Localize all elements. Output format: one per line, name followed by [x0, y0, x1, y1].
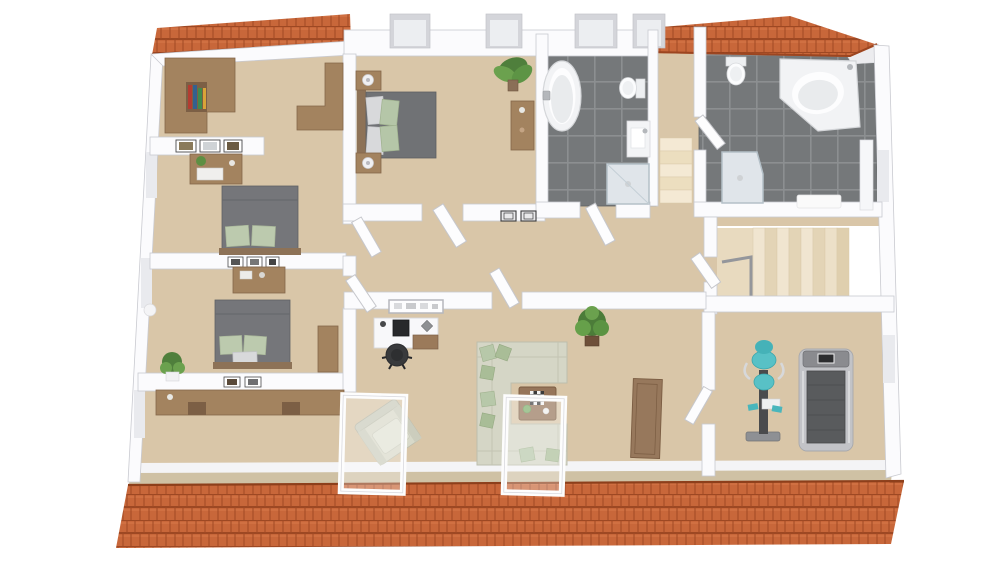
picture-art — [179, 142, 193, 150]
window-left — [134, 390, 145, 438]
stair-step — [813, 228, 825, 298]
corridor-step — [660, 177, 692, 190]
book — [198, 88, 202, 109]
washbasin-faucet — [643, 129, 648, 134]
stair-step — [789, 228, 801, 298]
window-top-glass — [490, 20, 518, 46]
corridor-step — [660, 138, 692, 151]
floor-plan-canvas — [0, 0, 1000, 562]
desk-mug — [380, 321, 386, 327]
bed-pillow — [380, 99, 400, 126]
treadmill-belt — [807, 371, 845, 443]
wall-bathroom2-south — [694, 202, 882, 217]
wall-fitness-west — [702, 312, 715, 390]
wall-vent — [521, 211, 536, 221]
picture-art — [248, 379, 258, 385]
sideboard-deco — [167, 394, 173, 400]
window-right — [883, 335, 895, 383]
bed-headboard — [219, 248, 301, 255]
bathtub-faucet — [847, 64, 853, 70]
roof-window-glass — [341, 395, 405, 493]
roof-top-right — [650, 16, 878, 57]
wall-master-south — [343, 204, 422, 221]
bed-pillow — [225, 225, 249, 247]
sofa-cushion — [480, 365, 495, 380]
dresser-deco — [229, 160, 235, 166]
corridor-step — [660, 190, 692, 203]
corridor-step — [660, 151, 692, 164]
wall-living-north — [522, 292, 706, 309]
sofa-cushion — [480, 413, 495, 428]
wall-corridor-east — [694, 150, 706, 206]
wall-bathrooms-south — [536, 202, 580, 218]
monitor — [393, 320, 409, 336]
bed-headboard — [213, 362, 292, 369]
dresser-drawer — [197, 168, 223, 180]
potted-plant-leaves — [585, 306, 599, 320]
bath-mat — [797, 195, 841, 208]
nightstand-lamp-top — [366, 161, 370, 165]
wall-corridor-east — [694, 27, 706, 117]
radiator — [860, 140, 873, 210]
pin-board-paper — [420, 303, 428, 309]
picture-art — [203, 142, 217, 150]
wall-left-column-east — [343, 54, 356, 224]
pin-board-paper — [406, 303, 416, 309]
wall-stairs-south — [704, 296, 894, 312]
potted-plant-leaves — [575, 320, 591, 336]
wall-hall-east — [704, 217, 717, 257]
bathtub-basin — [551, 75, 573, 123]
tall-cabinet — [631, 379, 663, 459]
shower-drain — [737, 175, 743, 181]
exercise-machine-pad — [754, 374, 774, 390]
dresser-plant — [196, 156, 206, 166]
window-left — [146, 152, 157, 198]
sofa-cushion — [480, 391, 496, 407]
window-top-glass — [394, 20, 426, 46]
wall-left-column-east — [343, 308, 356, 392]
stair-step — [765, 228, 777, 298]
picture-art — [231, 259, 240, 265]
book — [203, 88, 206, 109]
dresser-deco — [259, 272, 265, 278]
potted-plant-leaves — [593, 320, 609, 336]
toilet-seat — [623, 81, 634, 95]
pin-board-paper — [394, 303, 402, 309]
sphere-lamp — [144, 304, 156, 316]
floor-plant-pot — [166, 372, 179, 381]
wall-fitness-west — [702, 424, 715, 476]
roof-window-glass — [504, 397, 564, 493]
dresser-deco — [520, 128, 525, 133]
bathtub-faucet — [543, 91, 550, 100]
stair-step — [825, 228, 837, 298]
exercise-machine-headrest — [755, 340, 773, 354]
corridor-step — [660, 164, 692, 177]
picture-art — [269, 259, 276, 265]
wall-vent — [501, 211, 516, 221]
sideboard — [156, 390, 344, 415]
dresser-deco — [240, 271, 252, 279]
bed-pillow — [251, 225, 275, 246]
window-right — [877, 150, 889, 202]
desk-return — [413, 335, 438, 349]
bed-pillow — [220, 335, 243, 354]
wall-left-column-east — [343, 256, 356, 276]
floor-plan — [0, 0, 1000, 562]
picture-art — [250, 259, 259, 265]
book — [193, 85, 197, 109]
bed-pillow — [380, 125, 399, 151]
picture-art — [227, 142, 239, 150]
palm-plant-pot — [508, 80, 518, 91]
sideboard-panel — [188, 402, 206, 415]
picture-art — [227, 379, 237, 385]
stair-step — [753, 228, 765, 298]
dresser-deco — [519, 107, 525, 113]
window-top-glass — [579, 20, 613, 46]
office-chair-back — [391, 349, 403, 361]
wall-bathroom1-west — [536, 34, 548, 206]
sideboard-panel — [282, 402, 300, 415]
potted-plant-pot — [585, 336, 599, 346]
stair-step — [837, 228, 849, 298]
pin-board-paper — [432, 304, 438, 309]
stair-step — [801, 228, 813, 298]
bench — [318, 326, 338, 372]
toilet-seat — [730, 67, 742, 82]
book — [188, 85, 192, 109]
stair-step — [777, 228, 789, 298]
bed-headboard — [357, 90, 366, 160]
toilet-tank — [636, 79, 645, 98]
nightstand-lamp-top — [366, 78, 370, 82]
treadmill-screen — [818, 354, 834, 363]
